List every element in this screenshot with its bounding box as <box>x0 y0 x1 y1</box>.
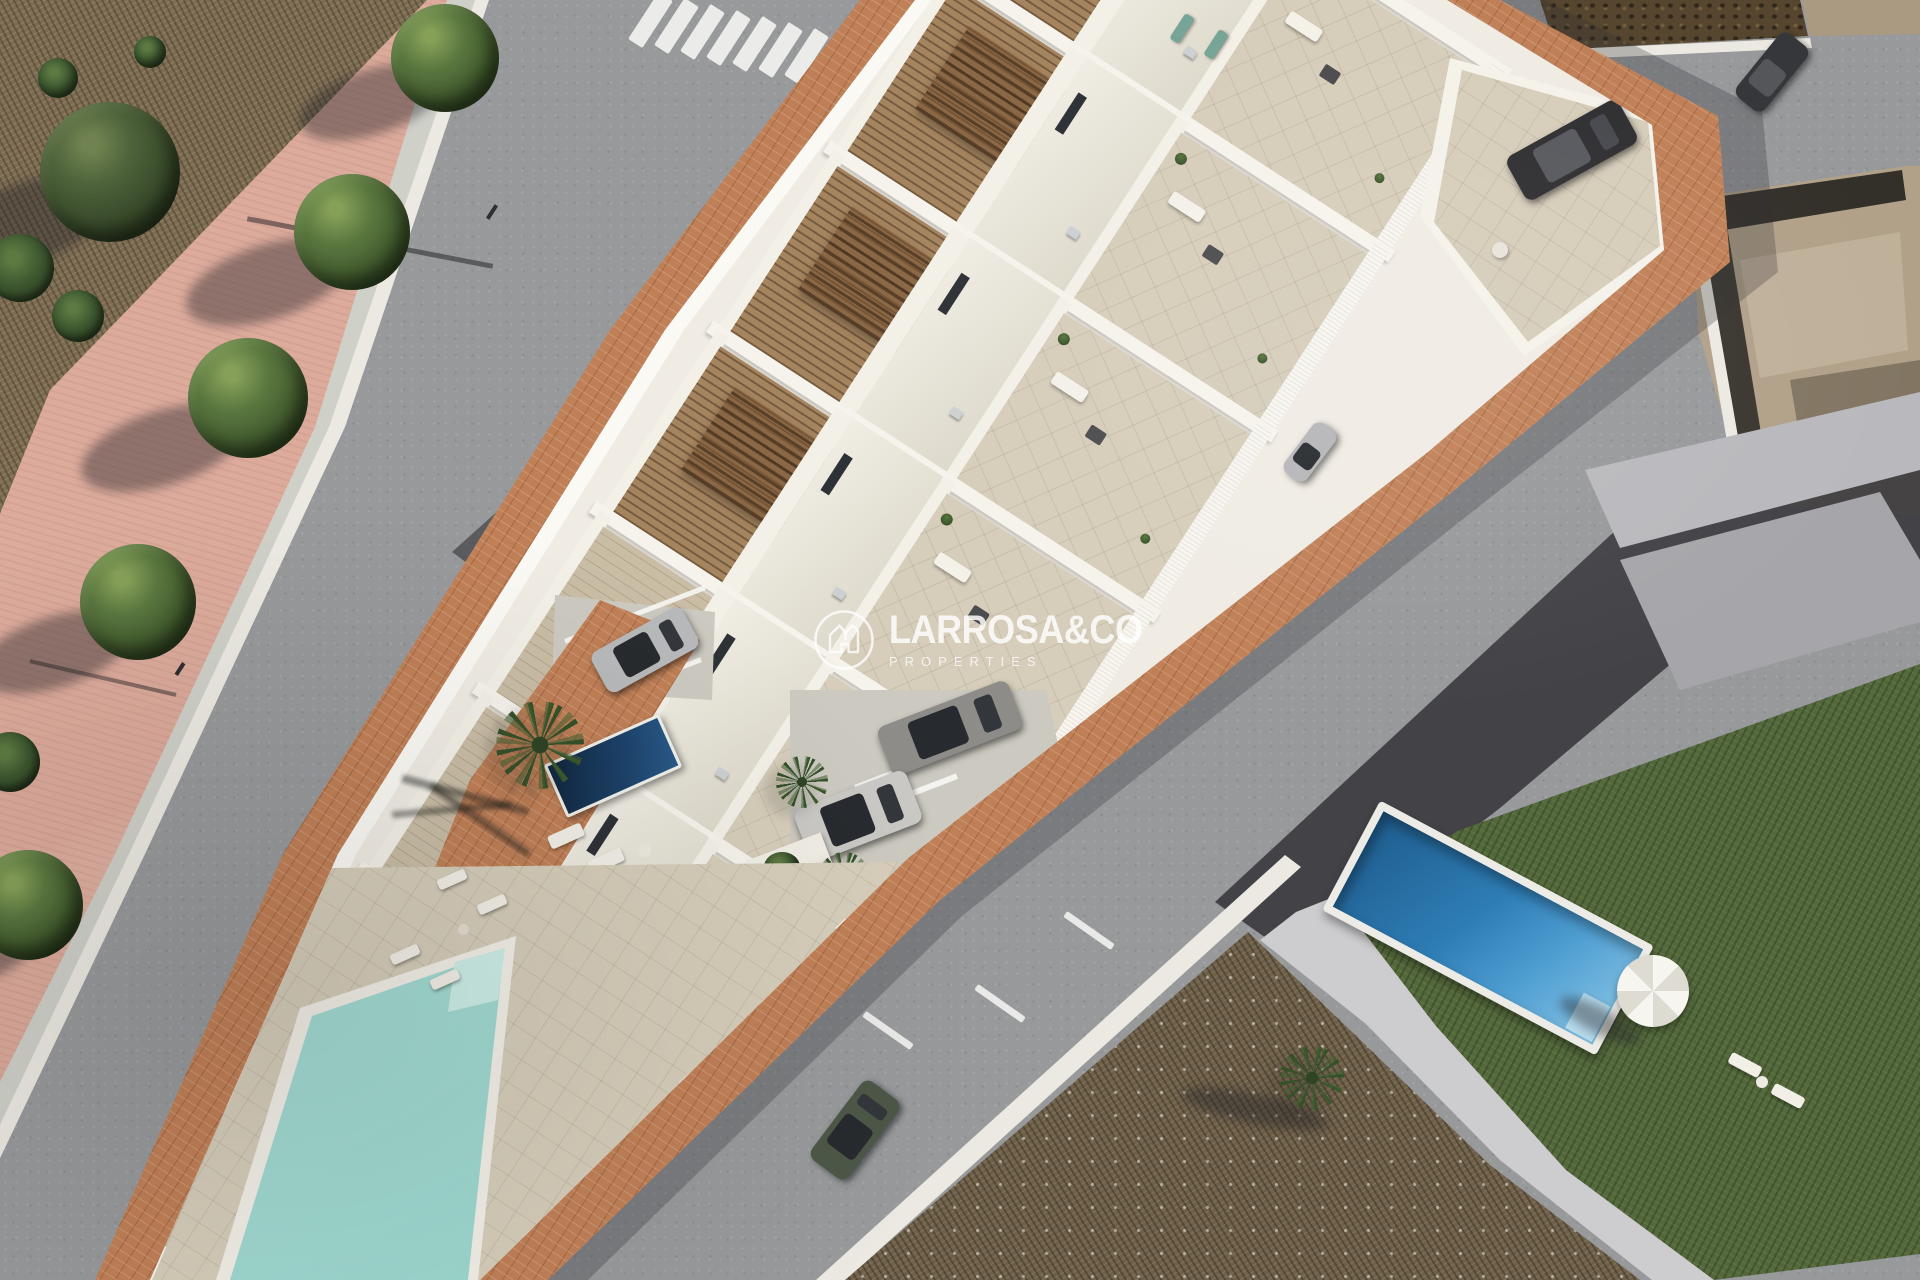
tree <box>40 102 180 242</box>
ac-unit <box>949 406 964 420</box>
outdoor-sofa <box>1050 371 1089 403</box>
umbrella-icon <box>1617 955 1689 1027</box>
terrace-plant <box>1255 352 1269 366</box>
tree <box>188 338 308 458</box>
palm-tree <box>496 701 584 789</box>
brand-tagline: PROPERTIES <box>889 654 1171 669</box>
outdoor-table <box>1319 64 1342 86</box>
ac-unit <box>832 586 847 600</box>
ac-unit <box>1183 45 1198 59</box>
outdoor-sofa <box>1284 10 1323 42</box>
terrace-plant <box>1138 532 1152 546</box>
outdoor-sofa <box>933 551 972 583</box>
skylight <box>820 453 852 495</box>
bush <box>52 290 104 342</box>
terrace-plant <box>1056 331 1073 348</box>
bush <box>38 58 78 98</box>
outdoor-table <box>1202 244 1225 266</box>
ac-unit <box>1066 226 1081 240</box>
terrace-plant <box>938 511 955 528</box>
tree <box>294 174 410 290</box>
villa-table <box>1756 1076 1768 1088</box>
skylight <box>938 273 970 315</box>
terrace-plant <box>1173 151 1190 168</box>
outdoor-sofa <box>1167 191 1206 223</box>
corner-table <box>1492 242 1508 258</box>
watermark: LARROSA&CO PROPERTIES <box>812 604 1171 676</box>
palm-tree <box>776 756 828 808</box>
villa-palm-tree <box>1280 1046 1344 1110</box>
bush <box>134 36 166 68</box>
terrace-table <box>638 844 651 857</box>
tree <box>391 4 499 112</box>
pool-table <box>458 924 469 935</box>
m-house-circle-icon <box>812 608 876 672</box>
terrace-plant <box>1373 171 1387 185</box>
watermark-text: LARROSA&CO PROPERTIES <box>889 611 1171 669</box>
brand-name: LARROSA&CO <box>889 611 1143 649</box>
tree <box>80 544 196 660</box>
ac-unit <box>715 767 730 781</box>
outdoor-table <box>1084 424 1107 446</box>
aerial-render: LARROSA&CO PROPERTIES <box>0 0 1920 1280</box>
skylight <box>1055 92 1087 134</box>
